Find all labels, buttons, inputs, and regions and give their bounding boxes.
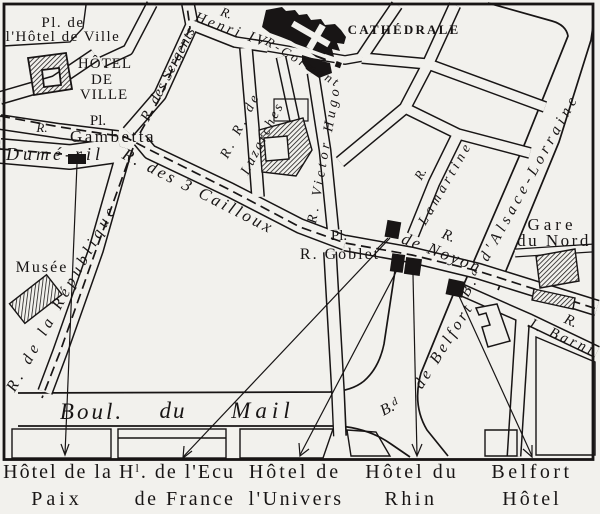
svg-text:Pl.: Pl.	[331, 228, 347, 244]
svg-text:Musée: Musée	[16, 259, 69, 276]
svg-text:Hôtel: Hôtel	[502, 488, 561, 510]
svg-text:CATHÉDRALE: CATHÉDRALE	[348, 22, 461, 37]
svg-text:Hôtel de la: Hôtel de la	[3, 461, 113, 483]
svg-text:l'Univers: l'Univers	[249, 488, 344, 510]
svg-text:Mail: Mail	[230, 398, 294, 423]
svg-text:R. Goblet: R. Goblet	[300, 246, 380, 263]
svg-text:Boul.: Boul.	[60, 399, 124, 424]
svg-text:de France: de France	[135, 488, 236, 510]
svg-text:l'Hôtel de Ville: l'Hôtel de Ville	[6, 29, 121, 45]
svg-text:Hôtel du: Hôtel du	[365, 461, 458, 483]
svg-text:R.: R.	[35, 120, 47, 135]
svg-text:HÔTEL: HÔTEL	[78, 55, 132, 72]
svg-text:Dumé-ril: Dumé-ril	[5, 144, 104, 164]
svg-text:du Nord: du Nord	[517, 231, 591, 250]
svg-text:Paix: Paix	[31, 488, 83, 510]
svg-text:Rhin: Rhin	[385, 488, 438, 510]
svg-text:Belfort: Belfort	[491, 461, 572, 483]
svg-text:VILLE: VILLE	[80, 87, 128, 103]
svg-text:DE: DE	[91, 72, 113, 88]
svg-text:du: du	[160, 398, 187, 423]
svg-text:Hôtel de: Hôtel de	[249, 461, 341, 483]
